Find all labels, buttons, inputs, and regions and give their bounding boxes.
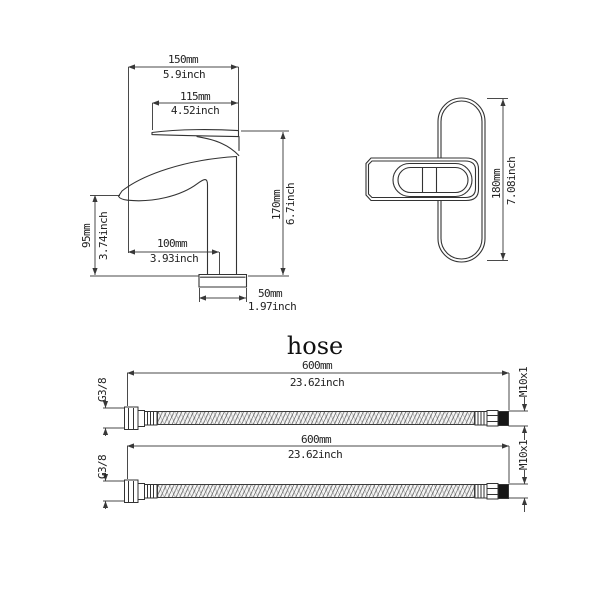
hose-1-length-inch-label: 23.62inch — [290, 377, 344, 389]
hose-2-length-inch-label: 23.62inch — [288, 449, 342, 461]
hose-2-connector — [487, 484, 498, 500]
hose-2-thread-tip — [498, 485, 509, 499]
faucet-cartridge — [197, 137, 239, 156]
hose-1-connector — [487, 411, 498, 427]
side-height-mm-label: 180mm — [491, 169, 503, 199]
hose-2-collar — [138, 484, 145, 500]
hose-2-length-mm-label: 600mm — [301, 434, 331, 446]
hose-1-left-thread-label: G3/8 — [97, 378, 109, 402]
front-top-width-mm-label: 150mm — [168, 54, 198, 66]
hose-2-nut — [125, 480, 139, 503]
hose-2-right-thread-label: M10x1 — [518, 440, 530, 470]
hose-section-title: hose — [287, 334, 343, 358]
front-spout-height-inch-label: 3.74inch — [98, 212, 110, 260]
hose-1-collar — [138, 411, 145, 427]
faucet-side-view — [366, 98, 485, 262]
hose-1-thread-tip — [498, 412, 509, 426]
hose-1-nut — [125, 407, 139, 430]
front-base-width-mm-label: 50mm — [258, 288, 282, 300]
front-base-width-inch-label: 1.97inch — [248, 301, 296, 313]
front-total-height-inch-label: 6.7inch — [285, 183, 297, 225]
front-spout-width-inch-label: 4.52inch — [171, 105, 219, 117]
technical-drawing — [0, 0, 600, 600]
faucet-base-plate — [199, 275, 247, 288]
hose-1-braid — [157, 411, 475, 425]
hose-1-right-thread-label: M10x1 — [518, 367, 530, 397]
front-spout-width-mm-label: 115mm — [180, 91, 210, 103]
front-top-width-inch-label: 5.9inch — [163, 69, 205, 81]
front-spout-reach-inch-label: 3.93inch — [150, 253, 198, 265]
front-total-height-mm-label: 170mm — [271, 190, 283, 220]
faucet-spec-drawing: 150mm 5.9inch 115mm 4.52inch 95mm 3.74in… — [0, 0, 600, 600]
side-height-inch-label: 7.08inch — [506, 157, 518, 205]
hose-2-left-thread-label: G3/8 — [97, 455, 109, 479]
front-spout-reach-mm-label: 100mm — [157, 238, 187, 250]
front-spout-height-mm-label: 95mm — [81, 224, 93, 248]
faucet-handle-blade — [152, 130, 239, 137]
hose-2-braid — [157, 484, 475, 498]
hose-1-length-mm-label: 600mm — [302, 360, 332, 372]
